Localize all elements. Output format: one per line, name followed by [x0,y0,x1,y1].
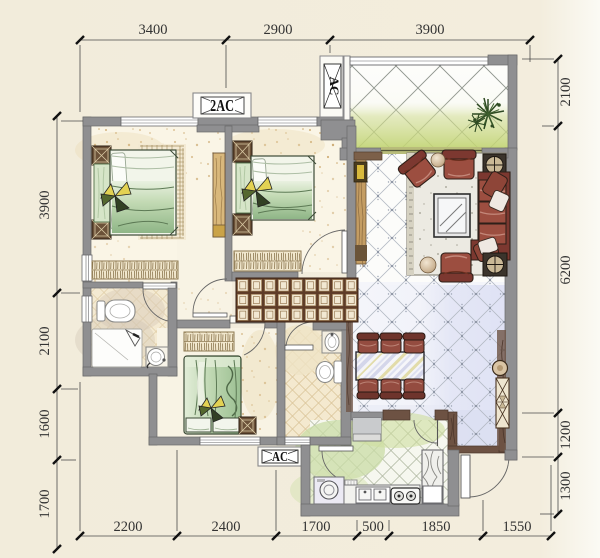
svg-text:2200: 2200 [114,519,143,535]
svg-text:3900: 3900 [416,22,445,38]
svg-text:1700: 1700 [302,519,331,535]
svg-text:500: 500 [362,519,384,535]
svg-text:2AC: 2AC [210,97,234,115]
svg-text:AC: AC [272,449,288,464]
svg-text:2400: 2400 [212,519,241,535]
svg-text:1600: 1600 [37,410,53,439]
svg-text:1850: 1850 [422,519,451,535]
svg-text:6200: 6200 [558,256,574,285]
svg-text:2900: 2900 [264,22,293,38]
svg-text:1550: 1550 [503,519,532,535]
svg-text:3400: 3400 [139,22,168,38]
svg-text:2100: 2100 [558,78,574,107]
svg-text:2100: 2100 [37,327,53,356]
svg-text:3900: 3900 [37,191,53,220]
svg-text:AC: AC [327,77,342,96]
svg-text:1200: 1200 [558,421,574,450]
svg-text:1700: 1700 [37,490,53,519]
svg-text:1300: 1300 [558,472,574,501]
